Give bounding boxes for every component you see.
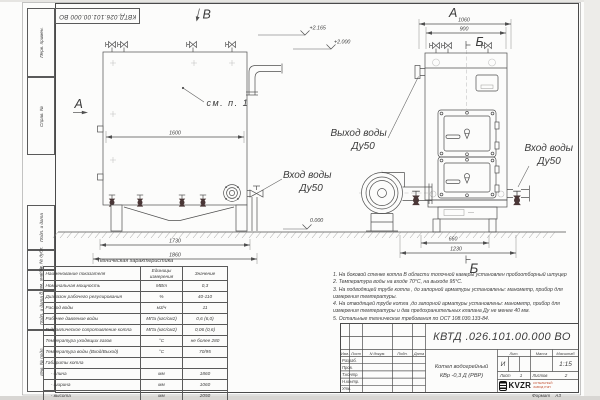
top-designation-text: КВТД.026.101.00.000 ВО (59, 13, 136, 20)
inlet-water-side-label: Вход воды (525, 143, 574, 154)
view-label-a-right: А (448, 6, 457, 20)
tb-row-razrab: Разраб. (342, 357, 362, 364)
blower-fan (362, 173, 433, 232)
tb-col-izm: Изм. (341, 350, 350, 357)
tb-mass-label: Масса (531, 350, 553, 357)
kvzr-coil-icon (499, 381, 507, 391)
note-line: измерения температуры и два предохраните… (333, 308, 579, 315)
spec-table-row: Температура воды (Вход/Выход)°С70/95 (44, 347, 228, 358)
spec-table-row: Диапазон рабочего регулирования%40-110 (44, 292, 228, 303)
spec-table-row: - ширинамм1060 (44, 380, 228, 391)
tb-lit-label: Лит. (498, 350, 531, 357)
inlet-water-front-label: Вход воды (283, 170, 332, 181)
outlet-flange-side (415, 66, 425, 79)
margin-box-label: Справ. № (38, 106, 43, 127)
page-edge-top (0, 0, 600, 2)
tb-scale-label: Масштаб (553, 350, 579, 357)
inlet-water-side-dn: Ду50 (537, 156, 562, 167)
kvzr-logo-text: KVZR (509, 381, 532, 390)
elevation-marks (258, 31, 336, 230)
tb-col-dokum: N докум. (363, 350, 393, 357)
inlet-flange (224, 185, 241, 202)
tb-sheets-label: Листов (533, 372, 553, 380)
elev-2165: +2.165 (310, 26, 326, 32)
lower-door (438, 157, 499, 198)
dim-1060: 1060 (458, 18, 470, 24)
tb-lit-value: И (498, 357, 509, 372)
margin-box-label: Перв. примен. (39, 27, 44, 58)
drawing-sheet: В А см. п. 1 1600 1730 1860 +2.165 +2.00… (0, 0, 600, 400)
spec-table: Наименование показателя Единицы измерени… (43, 266, 228, 400)
elev-0000: 0.000 (310, 218, 323, 224)
tb-row-prov: Пров. (342, 364, 362, 371)
outlet-water-dn: Ду50 (351, 141, 376, 152)
dim-1230: 1230 (450, 247, 462, 253)
note-line: измерения температуры. (333, 294, 579, 301)
kvzr-logo-sub2: ЗАВОД РЭП (533, 386, 552, 390)
tb-row-nkontr: Н.контр. (342, 378, 362, 385)
margin-box-podp-data-1: Подп. и дата (27, 205, 55, 250)
outlet-pipe-elbow (246, 64, 282, 96)
spec-table-row: Рабочее давление водыМПа (кгс/см2)0,6 (6… (44, 314, 228, 325)
safety-valves-top (106, 42, 236, 53)
section-label-b-top: Б (476, 35, 484, 49)
tb-row-tkontr: Т.контр. (342, 371, 362, 378)
note-line: 1. На боковой стенке котла В области топ… (333, 272, 579, 279)
note-line: 4. На отводящей трубе котла ,до запорной… (333, 301, 579, 308)
support-legs-front (111, 205, 247, 231)
note-line: 5. Остальные технические требования по О… (333, 316, 579, 323)
tb-product-name: Котел водогрейный КВр -0,3 Д (РВР) (426, 350, 498, 393)
outlet-water-label: Выход воды (331, 128, 388, 139)
margin-box-perv-primen: Перв. примен. (27, 8, 55, 77)
spec-header-row: Наименование показателя Единицы измерени… (44, 267, 228, 281)
spec-table-row: Габариты котла (44, 358, 228, 369)
view-label-v: В (203, 8, 211, 22)
spec-table-row: Номинальная мощностьМВт0,3 (44, 281, 228, 292)
product-name-line1: Котел водогрейный (435, 364, 488, 370)
format-label: Формат (532, 393, 550, 398)
front-view (93, 42, 282, 265)
inlet-water-front-dn: Ду50 (299, 183, 324, 194)
dim-660: 660 (449, 237, 458, 243)
spec-col-value: Значение (183, 267, 228, 281)
elev-2000: +2.000 (334, 40, 350, 46)
notes-block: 1. На боковой стенке котла В области топ… (333, 272, 579, 323)
spec-table-body: Номинальная мощностьМВт0,3Диапазон рабоч… (44, 281, 228, 400)
dim-900: 900 (460, 27, 469, 33)
callout-see-note: см. п. 1 (207, 98, 250, 108)
section-label-a-left: А (74, 97, 83, 111)
inlet-valve-side (507, 186, 530, 206)
tb-sheet-value: 1 (516, 372, 526, 380)
spec-table-row: - высотамм2050 (44, 391, 228, 400)
tb-col-list: Лист (350, 350, 363, 357)
upper-door (438, 110, 499, 157)
margin-box-label: Подп. и дата (39, 213, 44, 242)
dim-1730: 1730 (169, 239, 181, 245)
title-block-designation: КВТД .026.101.00.000 ВО (426, 324, 579, 350)
tb-col-podp: Подп. (393, 350, 413, 357)
tb-row-utv: Утв. (342, 385, 362, 392)
dim-1600: 1600 (169, 131, 181, 137)
spec-col-name: Наименование показателя (44, 267, 141, 281)
tb-col-data: Дата (413, 350, 426, 357)
note-line: 2. Температура воды на входе 70°С, на вы… (333, 279, 579, 286)
tb-scale-value: 1:15 (553, 357, 579, 372)
base-frame-side (428, 200, 507, 232)
margin-box-sprav: Справ. № (27, 77, 55, 155)
top-designation-stamp: КВТД.026.101.00.000 ВО (55, 8, 140, 24)
format-value: А3 (555, 393, 561, 398)
product-name-line2: КВр -0,3 Д (РВР) (440, 373, 483, 379)
tb-sheet-label: Лист (500, 372, 514, 380)
spec-table-row: Температура уходящих газов°Сне более 280 (44, 336, 228, 347)
spec-table-title: Техническая характеристика (43, 258, 227, 264)
tb-sheets-value: 2 (560, 372, 572, 380)
side-view (359, 19, 530, 264)
page-edge-right (584, 0, 600, 400)
inlet-valve-front (247, 186, 263, 231)
spec-table-row: Гидравлическое сопротивление котлаМПа (к… (44, 325, 228, 336)
manufacturer-logo: KVZR КОТЕЛЬНЫЙ ЗАВОД РЭП (499, 380, 578, 393)
note-line: 3. На подводящей трубе котла , до запорн… (333, 287, 579, 294)
format-note: Формат А3 (532, 393, 561, 398)
spec-table-row: - длинамм1860 (44, 369, 228, 380)
spec-table-row: Расход водым3/ч11 (44, 303, 228, 314)
fan-duct-valve (412, 191, 420, 205)
spec-col-units: Единицы измерения (141, 267, 183, 281)
